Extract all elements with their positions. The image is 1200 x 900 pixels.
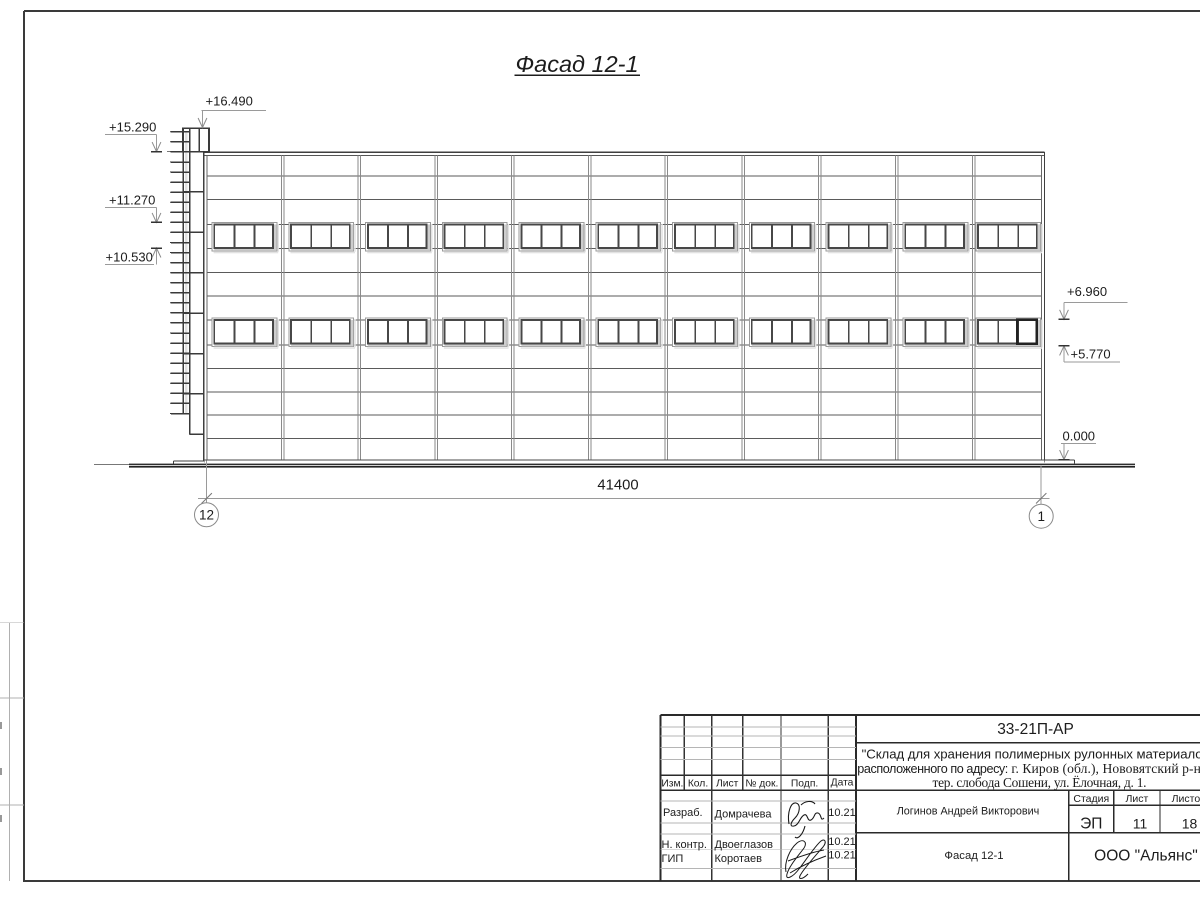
svg-text:+11.270: +11.270 [109,193,155,208]
svg-text:ЭП: ЭП [1080,816,1102,833]
svg-text:Фасад 12-1: Фасад 12-1 [515,51,638,77]
svg-text:+5.770: +5.770 [1071,346,1111,361]
svg-text:Двоеглазов: Двоеглазов [715,839,774,851]
svg-text:Лист: Лист [1125,793,1148,805]
svg-text:Листов: Листов [1172,793,1200,805]
svg-text:Лист: Лист [716,779,739,790]
svg-text:ГИП: ГИП [662,853,684,865]
svg-text:10.21: 10.21 [828,836,856,848]
svg-text:Стадия: Стадия [1073,793,1109,805]
svg-text:Домрачева: Домрачева [715,809,773,821]
svg-text:33-21П-АР: 33-21П-АР [997,721,1074,738]
svg-text:тер. слобода Сошени, ул. Ёлочн: тер. слобода Сошени, ул. Ёлочная, д. 1. [933,775,1147,790]
svg-text:0.000: 0.000 [1063,428,1096,443]
svg-text:Изм.: Изм. [661,779,683,790]
svg-text:Н. контр.: Н. контр. [662,839,707,851]
svg-text:41400: 41400 [597,478,638,494]
svg-text:Коротаев: Коротаев [715,853,763,865]
svg-text:Кол.: Кол. [688,779,708,790]
svg-text:1: 1 [1037,509,1045,524]
svg-text:+10.530: +10.530 [106,250,153,265]
svg-text:"Склад для хранения полимерных: "Склад для хранения полимерных рулонных … [862,746,1200,761]
svg-text:+15.290: +15.290 [109,120,156,135]
svg-text:Разраб.: Разраб. [663,807,703,819]
svg-text:Фасад 12-1: Фасад 12-1 [944,850,1003,862]
svg-text:10.21: 10.21 [828,807,856,819]
svg-text:+16.490: +16.490 [206,94,253,109]
svg-text:10.21: 10.21 [828,850,856,862]
svg-text:Дата: Дата [831,778,854,789]
svg-text:ООО "Альянс": ООО "Альянс" [1094,848,1198,865]
svg-text:11: 11 [1133,816,1148,832]
svg-text:12: 12 [199,508,214,523]
svg-text:+6.960: +6.960 [1067,284,1107,299]
svg-text:Логинов Андрей Викторович: Логинов Андрей Викторович [897,806,1040,818]
svg-text:№ док.: № док. [745,779,778,790]
svg-text:Подп.: Подп. [791,779,818,790]
svg-text:18: 18 [1182,816,1198,832]
